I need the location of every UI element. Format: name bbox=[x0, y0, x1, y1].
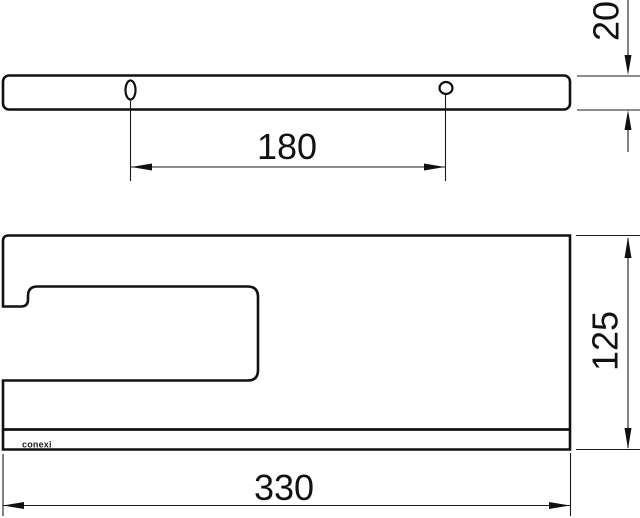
arrowhead-up-icon bbox=[625, 110, 632, 130]
arrowhead-left-icon bbox=[3, 502, 24, 509]
dimension-depth: 125 bbox=[576, 236, 640, 450]
dimension-label-width: 330 bbox=[254, 467, 314, 508]
arrowhead-right-icon bbox=[424, 164, 445, 171]
brand-logo-text: conexi bbox=[22, 440, 52, 450]
dimension-width: 330 bbox=[3, 453, 571, 516]
top-view: conexi bbox=[3, 236, 570, 450]
arrowhead-up-icon bbox=[625, 237, 632, 258]
mounting-hole-left bbox=[126, 81, 136, 100]
arrowhead-down-icon bbox=[625, 428, 632, 449]
dimension-label-thickness: 20 bbox=[586, 1, 627, 41]
dimension-drawing: 180 20 conexi 125 bbox=[0, 0, 640, 518]
arrowhead-left-icon bbox=[131, 164, 152, 171]
side-view-outline bbox=[3, 76, 570, 110]
arrowhead-right-icon bbox=[549, 502, 570, 509]
dimension-label-depth: 125 bbox=[585, 311, 626, 371]
mounting-hole-right bbox=[440, 82, 453, 94]
arrowhead-down-icon bbox=[625, 55, 632, 75]
dimension-thickness: 20 bbox=[577, 0, 640, 152]
dimension-label-hole-spacing: 180 bbox=[257, 126, 317, 167]
side-view bbox=[3, 76, 570, 110]
technical-drawing-canvas: 180 20 conexi 125 bbox=[0, 0, 640, 518]
top-view-outline-with-slot bbox=[3, 236, 570, 450]
dimension-hole-spacing: 180 bbox=[131, 95, 446, 181]
